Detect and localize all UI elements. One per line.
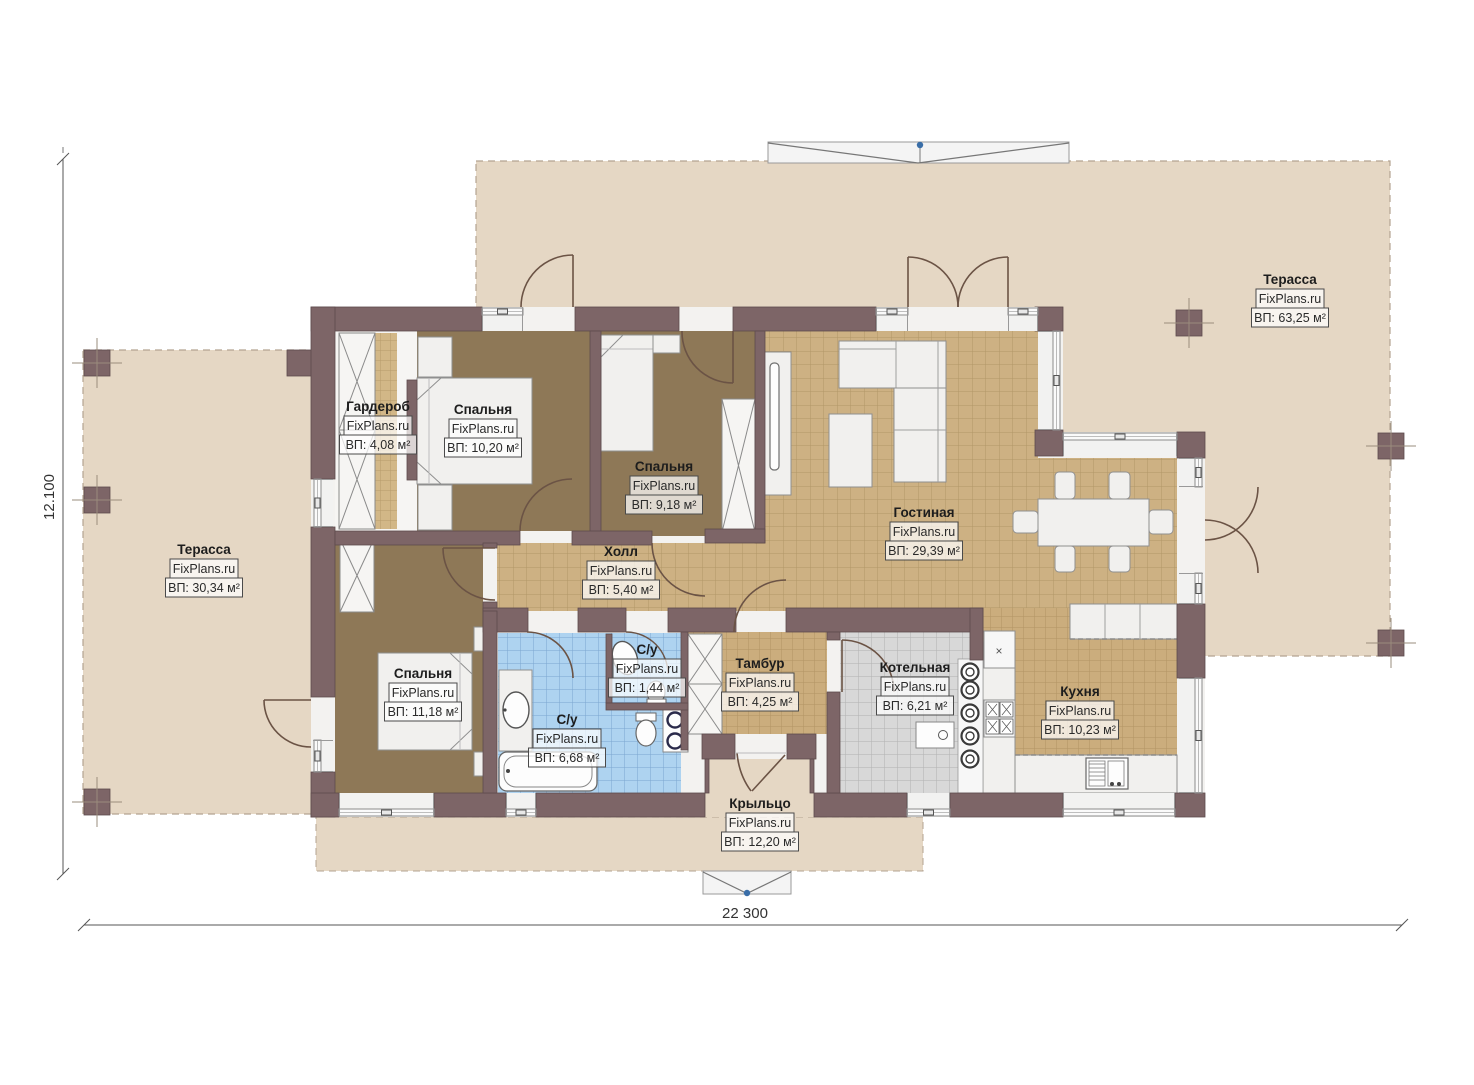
svg-text:ВП: 12,20 м²: ВП: 12,20 м² — [724, 835, 796, 849]
svg-text:ВП: 10,20 м²: ВП: 10,20 м² — [447, 441, 519, 455]
svg-text:Крыльцо: Крыльцо — [729, 796, 790, 811]
svg-text:С/у: С/у — [556, 712, 578, 727]
svg-text:Гардероб: Гардероб — [346, 399, 410, 414]
svg-text:22 300: 22 300 — [722, 905, 768, 922]
svg-text:FixPlans.ru: FixPlans.ru — [347, 419, 410, 433]
svg-text:Кухня: Кухня — [1060, 684, 1099, 699]
svg-text:ВП: 4,25 м²: ВП: 4,25 м² — [728, 695, 793, 709]
svg-text:Спальня: Спальня — [394, 666, 452, 681]
svg-text:FixPlans.ru: FixPlans.ru — [536, 732, 599, 746]
svg-text:FixPlans.ru: FixPlans.ru — [1049, 704, 1112, 718]
svg-text:FixPlans.ru: FixPlans.ru — [392, 686, 455, 700]
svg-text:12.100: 12.100 — [41, 474, 58, 520]
svg-text:×: × — [995, 644, 1002, 658]
svg-text:ВП: 30,34 м²: ВП: 30,34 м² — [168, 581, 240, 595]
svg-text:ВП: 6,68 м²: ВП: 6,68 м² — [535, 751, 600, 765]
svg-text:Терасса: Терасса — [177, 542, 231, 557]
svg-text:ВП: 11,18 м²: ВП: 11,18 м² — [388, 705, 459, 719]
svg-text:Терасса: Терасса — [1263, 272, 1317, 287]
svg-text:FixPlans.ru: FixPlans.ru — [1259, 292, 1322, 306]
svg-text:ВП: 4,08 м²: ВП: 4,08 м² — [346, 438, 411, 452]
svg-text:Холл: Холл — [604, 544, 638, 559]
svg-text:ВП: 10,23 м²: ВП: 10,23 м² — [1044, 723, 1116, 737]
svg-text:ВП: 63,25 м²: ВП: 63,25 м² — [1254, 311, 1326, 325]
svg-text:ВП: 29,39 м²: ВП: 29,39 м² — [888, 544, 960, 558]
svg-text:FixPlans.ru: FixPlans.ru — [173, 562, 236, 576]
svg-text:FixPlans.ru: FixPlans.ru — [616, 662, 679, 676]
svg-text:FixPlans.ru: FixPlans.ru — [633, 479, 696, 493]
svg-text:Спальня: Спальня — [635, 459, 693, 474]
svg-text:FixPlans.ru: FixPlans.ru — [590, 564, 653, 578]
svg-text:FixPlans.ru: FixPlans.ru — [729, 816, 792, 830]
svg-text:FixPlans.ru: FixPlans.ru — [884, 680, 947, 694]
svg-text:Гостиная: Гостиная — [893, 505, 954, 520]
svg-text:FixPlans.ru: FixPlans.ru — [729, 676, 792, 690]
svg-text:ВП: 1,44 м²: ВП: 1,44 м² — [615, 681, 680, 695]
svg-text:Котельная: Котельная — [880, 660, 951, 675]
svg-text:ВП: 6,21 м²: ВП: 6,21 м² — [883, 699, 948, 713]
svg-text:ВП: 5,40 м²: ВП: 5,40 м² — [589, 583, 654, 597]
svg-text:Тамбур: Тамбур — [736, 656, 785, 671]
svg-text:Спальня: Спальня — [454, 402, 512, 417]
svg-text:С/у: С/у — [636, 642, 658, 657]
svg-text:FixPlans.ru: FixPlans.ru — [893, 525, 956, 539]
svg-text:FixPlans.ru: FixPlans.ru — [452, 422, 515, 436]
svg-text:ВП: 9,18 м²: ВП: 9,18 м² — [632, 498, 697, 512]
